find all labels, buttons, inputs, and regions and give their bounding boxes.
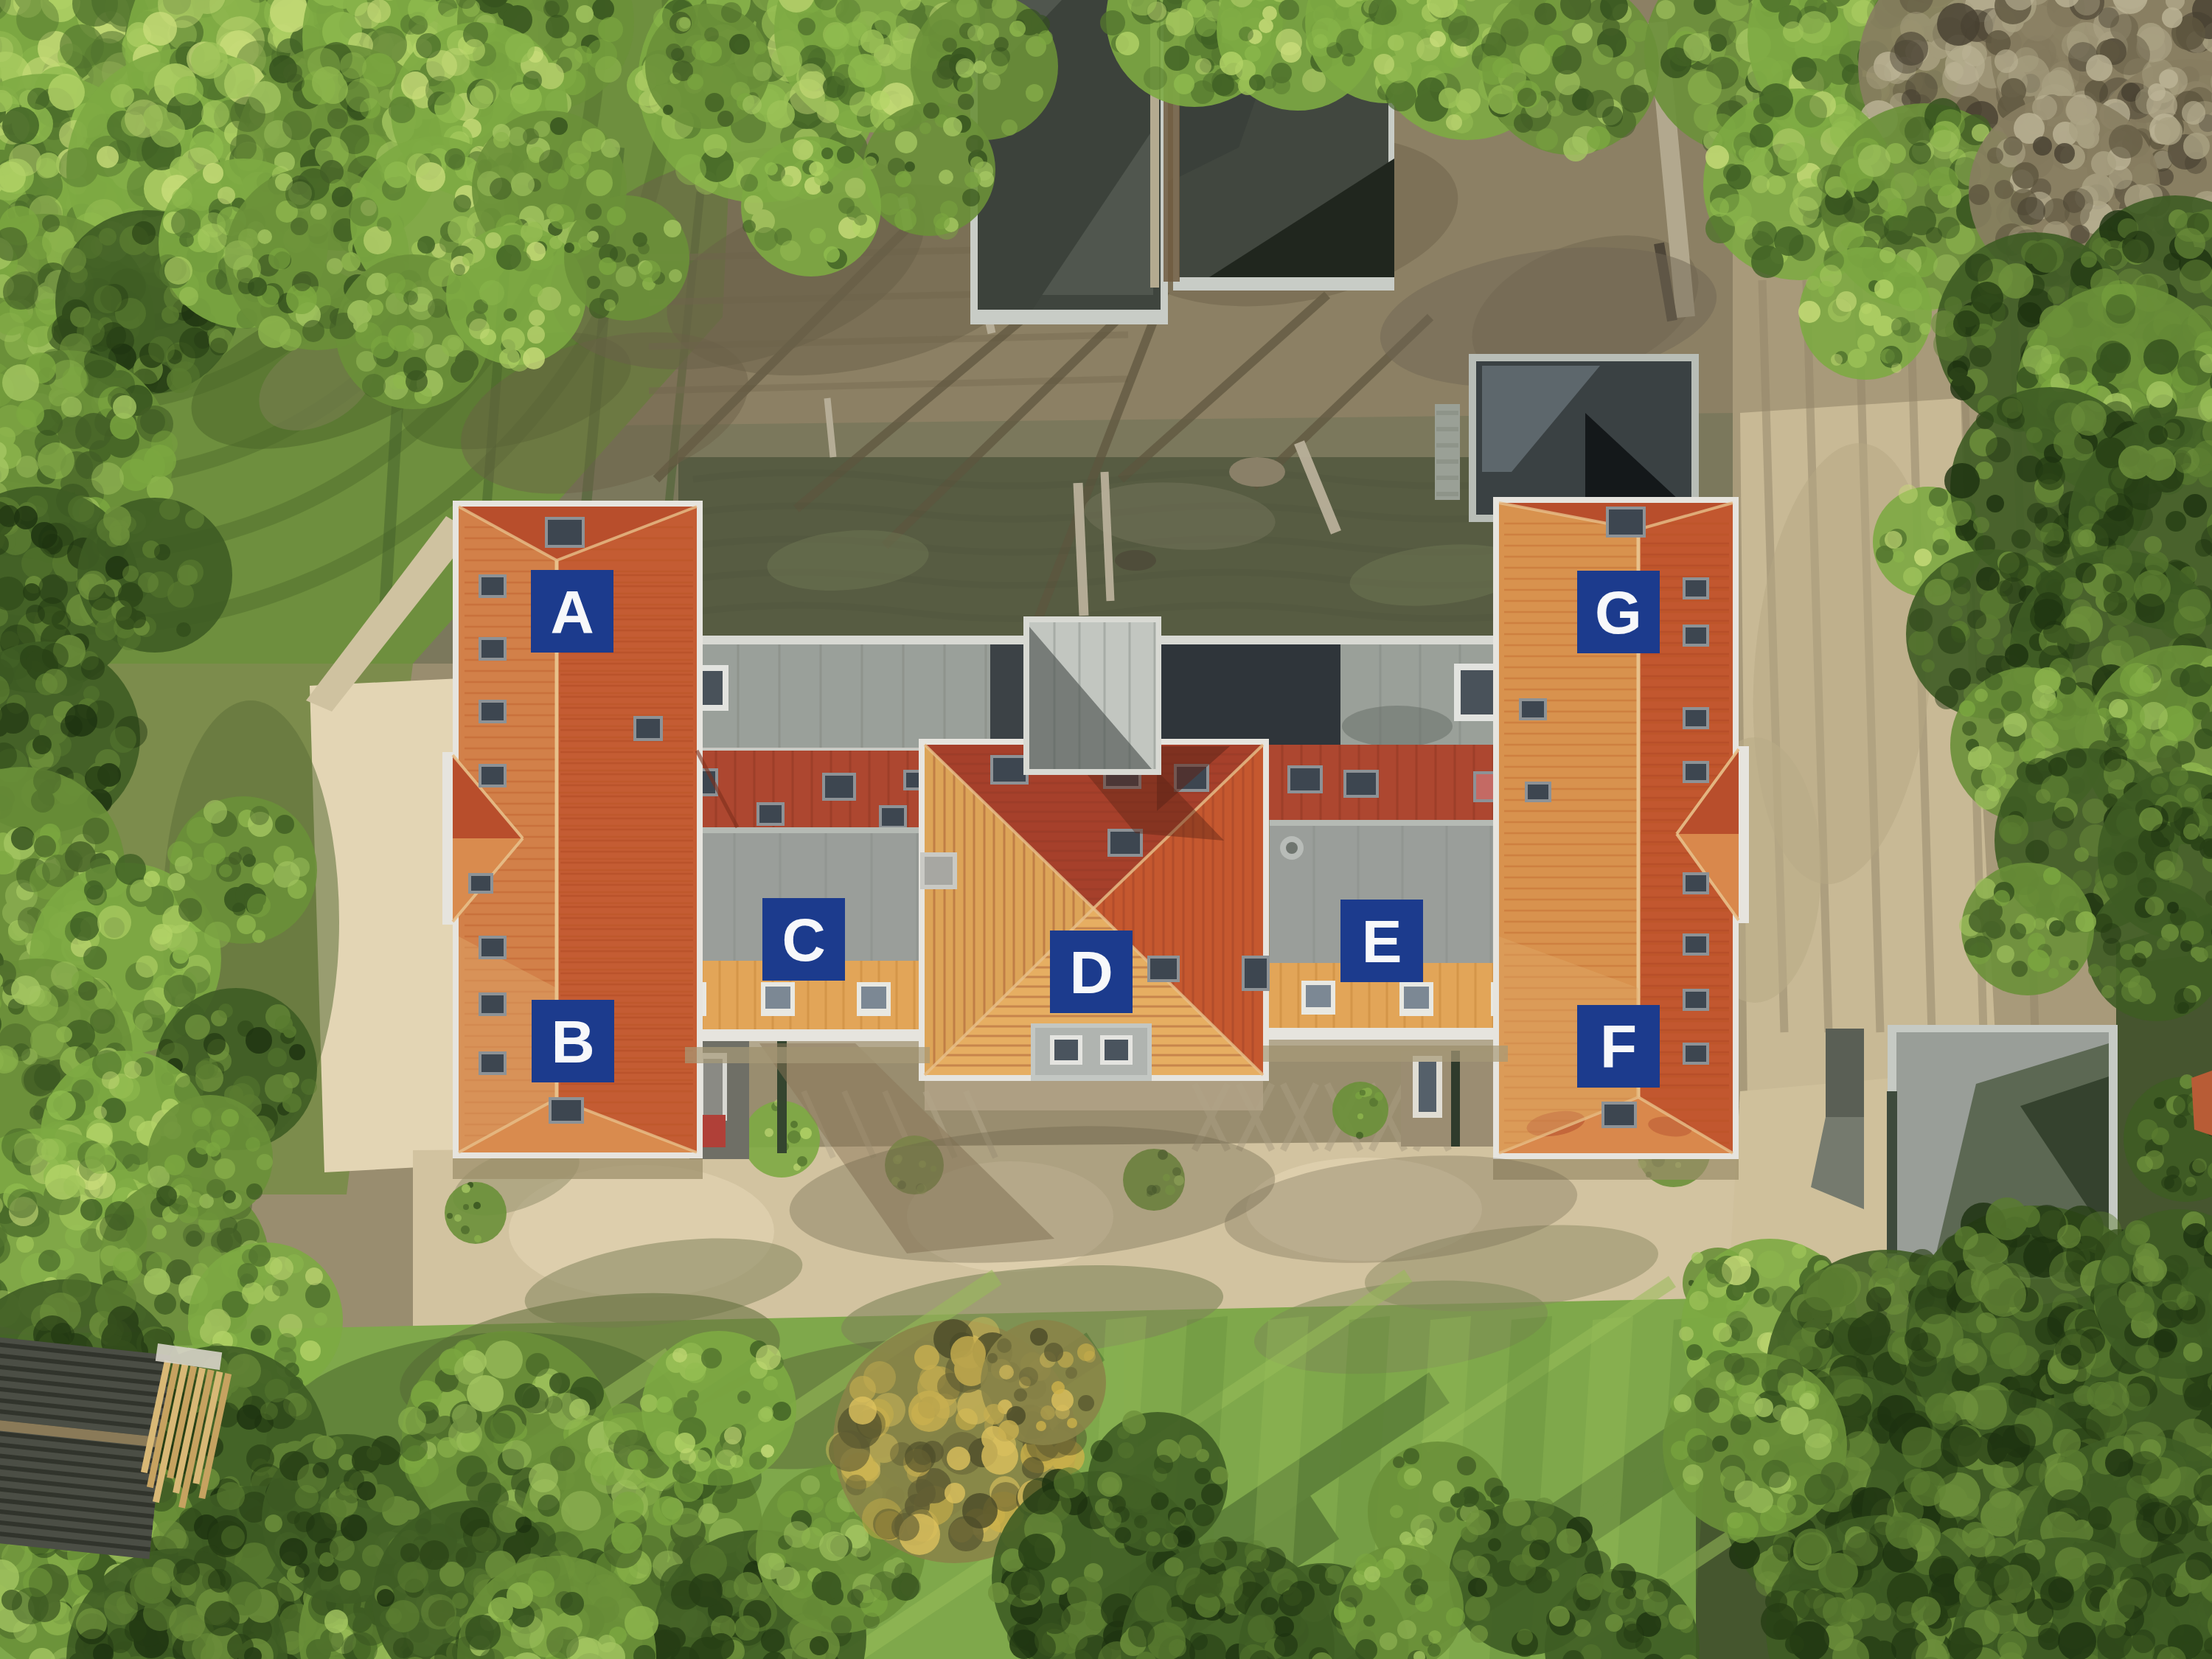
svg-text:F: F xyxy=(1600,1013,1637,1080)
svg-text:D: D xyxy=(1069,939,1113,1006)
svg-text:A: A xyxy=(550,578,594,645)
svg-text:E: E xyxy=(1362,908,1402,975)
svg-text:G: G xyxy=(1595,579,1642,646)
svg-text:B: B xyxy=(551,1008,594,1075)
svg-text:C: C xyxy=(782,906,825,973)
